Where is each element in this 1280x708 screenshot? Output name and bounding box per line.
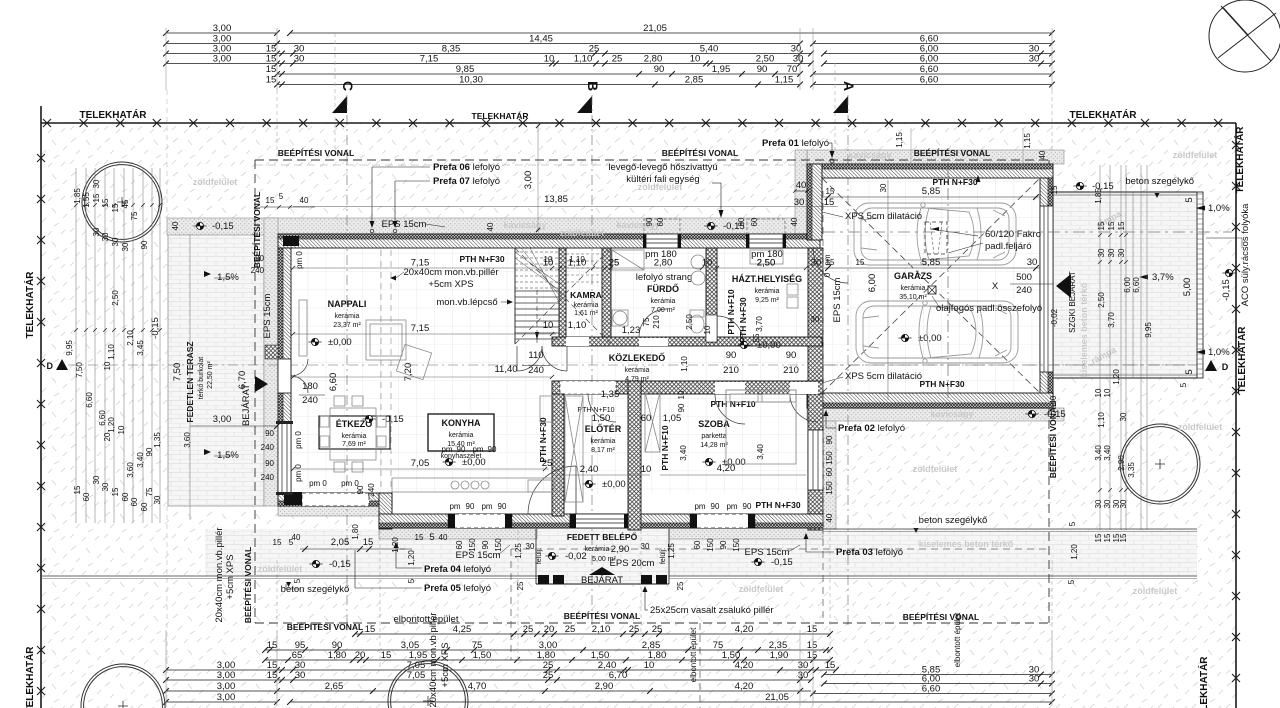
svg-text:30: 30	[798, 670, 809, 681]
svg-text:kavicságy: kavicságy	[848, 150, 891, 160]
svg-text:7,15: 7,15	[411, 323, 430, 334]
svg-text:14,28 m²: 14,28 m²	[700, 442, 728, 449]
svg-text:-0,15: -0,15	[212, 221, 234, 232]
svg-text:padl.feljáró: padl.feljáró	[985, 241, 1031, 252]
svg-text:-0,15: -0,15	[150, 317, 161, 339]
svg-text:BEÉPÍTÉSI VONAL: BEÉPÍTÉSI VONAL	[903, 612, 980, 622]
svg-text:35,10 m²: 35,10 m²	[899, 294, 927, 301]
svg-text:-0,02: -0,02	[565, 551, 587, 562]
svg-text:1,35: 1,35	[153, 432, 162, 448]
svg-text:40: 40	[825, 513, 834, 522]
svg-text:7,50: 7,50	[172, 363, 183, 382]
svg-text:15: 15	[824, 197, 835, 208]
svg-text:6,60: 6,60	[328, 373, 339, 392]
svg-text:1,0%: 1,0%	[1208, 347, 1230, 358]
svg-text:±0,00: ±0,00	[462, 457, 486, 468]
svg-text:7,15: 7,15	[411, 258, 430, 269]
svg-text:15: 15	[266, 53, 277, 64]
svg-text:60: 60	[82, 492, 91, 501]
svg-text:Prefa 04 lefolyó: Prefa 04 lefolyó	[424, 564, 491, 575]
svg-text:15: 15	[856, 258, 865, 267]
svg-text:ACO süly.rácsos folyóka: ACO süly.rácsos folyóka	[1240, 203, 1251, 306]
svg-text:1,0%: 1,0%	[1208, 203, 1230, 214]
svg-text:7,50: 7,50	[75, 362, 84, 378]
svg-text:25: 25	[516, 581, 525, 590]
svg-text:40: 40	[171, 221, 180, 230]
svg-text:5: 5	[279, 192, 284, 201]
svg-text:10: 10	[1094, 388, 1103, 397]
svg-text:1,10: 1,10	[574, 53, 593, 64]
svg-text:2,50: 2,50	[685, 314, 694, 330]
svg-text:B: B	[585, 81, 601, 91]
svg-text:3,00: 3,00	[217, 692, 236, 703]
svg-text:EPS 20cm: EPS 20cm	[610, 558, 655, 569]
svg-text:TELEKHATÁR: TELEKHATÁR	[79, 108, 147, 121]
svg-text:5: 5	[407, 578, 416, 583]
svg-text:240: 240	[261, 443, 275, 452]
svg-text:15: 15	[266, 64, 277, 75]
svg-text:FÜRDŐ: FÜRDŐ	[647, 283, 679, 294]
svg-text:5: 5	[1184, 369, 1195, 374]
svg-text:2,50: 2,50	[756, 53, 775, 64]
svg-text:30: 30	[1029, 53, 1040, 64]
svg-text:TELEKHATÁR: TELEKHATÁR	[23, 271, 36, 339]
svg-text:3,70: 3,70	[755, 316, 764, 332]
svg-text:40: 40	[790, 217, 799, 226]
svg-text:9,95: 9,95	[65, 340, 74, 356]
svg-text:pm 180: pm 180	[645, 249, 677, 260]
svg-text:2,10: 2,10	[592, 624, 611, 635]
svg-text:25: 25	[565, 624, 576, 635]
svg-text:30: 30	[1107, 248, 1116, 257]
svg-text:25: 25	[629, 624, 640, 635]
svg-text:-0,15: -0,15	[771, 557, 793, 568]
svg-text:3,7%: 3,7%	[1152, 272, 1174, 283]
svg-text:kerámia: kerámia	[591, 438, 616, 445]
svg-text:1,10: 1,10	[569, 255, 585, 264]
svg-text:15: 15	[1107, 221, 1116, 230]
svg-text:15: 15	[266, 74, 277, 85]
svg-text:5: 5	[293, 578, 302, 583]
svg-text:60: 60	[750, 217, 759, 226]
svg-text:-0,02: -0,02	[1050, 308, 1059, 327]
svg-text:XPS 5cm dilatáció: XPS 5cm dilatáció	[845, 211, 922, 222]
svg-text:30: 30	[92, 475, 101, 484]
svg-text:25: 25	[676, 581, 685, 590]
svg-text:PTH N+F10: PTH N+F10	[660, 425, 670, 470]
svg-text:90: 90	[466, 502, 475, 511]
svg-text:beton szegélykő: beton szegélykő	[919, 515, 988, 526]
svg-text:C: C	[340, 81, 356, 91]
svg-text:NAPPALI: NAPPALI	[328, 299, 367, 309]
svg-text:4,20: 4,20	[735, 624, 754, 635]
svg-text:1,23: 1,23	[622, 325, 641, 336]
svg-text:25: 25	[523, 624, 534, 635]
svg-text:parketta: parketta	[701, 433, 726, 440]
svg-text:90: 90	[654, 64, 665, 75]
svg-text:2,40: 2,40	[580, 464, 599, 475]
svg-text:2,80: 2,80	[644, 53, 663, 64]
svg-text:90: 90	[737, 217, 746, 226]
svg-text:30: 30	[879, 183, 888, 192]
svg-text:1,80: 1,80	[351, 524, 360, 540]
svg-text:90: 90	[265, 459, 274, 468]
svg-text:HÁZT.HELYISÉG: HÁZT.HELYISÉG	[732, 274, 802, 284]
svg-text:kültéri fali egység: kültéri fali egység	[626, 174, 699, 185]
svg-text:30: 30	[101, 232, 110, 241]
svg-text:40: 40	[796, 180, 807, 191]
svg-text:30: 30	[1117, 248, 1126, 257]
svg-text:kiselemes beton térkő: kiselemes beton térkő	[919, 539, 1014, 549]
svg-text:olajfogós padl.összefolyó: olajfogós padl.összefolyó	[936, 303, 1042, 314]
svg-text:1,50: 1,50	[473, 650, 492, 661]
svg-text:6,60: 6,60	[1132, 277, 1141, 293]
svg-text:75: 75	[145, 487, 154, 496]
svg-text:-0,15: -0,15	[1221, 279, 1232, 301]
svg-text:elbontott épület: elbontott épület	[689, 627, 698, 682]
svg-text:25x25cm vasalt zsalukó pillér: 25x25cm vasalt zsalukó pillér	[650, 605, 774, 616]
svg-text:1,10: 1,10	[680, 356, 689, 372]
svg-text:1,61 m²: 1,61 m²	[574, 310, 598, 317]
svg-text:5,00: 5,00	[1182, 278, 1193, 297]
svg-text:TELEKHATÁR: TELEKHATÁR	[1235, 326, 1248, 394]
svg-text:+5cm XPS: +5cm XPS	[225, 554, 236, 599]
svg-text:210: 210	[783, 365, 799, 376]
svg-text:15: 15	[92, 193, 101, 202]
svg-text:4,20: 4,20	[735, 660, 754, 671]
svg-text:30: 30	[294, 53, 305, 64]
svg-text:90: 90	[356, 485, 365, 494]
svg-text:70: 70	[787, 64, 798, 75]
svg-text:EPS 15cm: EPS 15cm	[832, 277, 843, 322]
svg-text:1,20: 1,20	[407, 550, 416, 566]
svg-text:levegő-levegő hőszivattyú: levegő-levegő hőszivattyú	[608, 162, 717, 173]
svg-text:D: D	[47, 361, 54, 371]
svg-text:40: 40	[292, 533, 301, 542]
svg-text:5,40: 5,40	[700, 43, 719, 54]
svg-text:240: 240	[367, 483, 376, 497]
svg-text:40: 40	[439, 533, 448, 542]
svg-text:20: 20	[544, 624, 555, 635]
svg-text:KÖZLEKEDŐ: KÖZLEKEDŐ	[609, 352, 666, 363]
svg-text:pm: pm	[449, 502, 460, 511]
svg-text:30: 30	[526, 542, 535, 551]
svg-text:60: 60	[130, 497, 139, 506]
svg-text:TELEKHATÁR: TELEKHATÁR	[1069, 108, 1137, 121]
svg-text:20x40cm mon.vb.pillér: 20x40cm mon.vb.pillér	[214, 527, 225, 622]
svg-text:zöldfelület: zöldfelület	[258, 564, 303, 574]
svg-text:10: 10	[103, 361, 112, 370]
svg-text:felülj.: felülj.	[660, 548, 667, 564]
svg-text:150: 150	[706, 538, 715, 552]
svg-text:30: 30	[1119, 412, 1128, 421]
svg-text:30: 30	[1027, 257, 1038, 268]
svg-text:15: 15	[1097, 221, 1106, 230]
svg-text:90: 90	[711, 502, 720, 511]
svg-text:SZGKI BEJÁRAT: SZGKI BEJÁRAT	[1068, 271, 1077, 333]
svg-text:240: 240	[1016, 285, 1032, 296]
svg-text:4,25: 4,25	[453, 624, 472, 635]
svg-text:Prefa 06 lefolyó: Prefa 06 lefolyó	[433, 162, 500, 173]
svg-text:+5cm XPS: +5cm XPS	[428, 279, 473, 290]
svg-text:elbontott épület: elbontott épület	[394, 614, 459, 625]
svg-text:90: 90	[140, 240, 149, 249]
svg-text:10,30: 10,30	[459, 74, 483, 85]
svg-text:55: 55	[752, 333, 761, 342]
svg-text:BEÉPÍTÉSI VONAL: BEÉPÍTÉSI VONAL	[243, 547, 253, 624]
svg-text:10: 10	[117, 425, 126, 434]
svg-text:10: 10	[644, 660, 655, 671]
svg-text:6,70: 6,70	[237, 371, 248, 390]
svg-text:2,85: 2,85	[685, 74, 704, 85]
svg-text:30: 30	[1119, 499, 1128, 508]
svg-text:2,65: 2,65	[325, 681, 344, 692]
svg-text:10: 10	[544, 53, 555, 64]
svg-text:TELEKHATÁR: TELEKHATÁR	[472, 111, 529, 121]
svg-text:7,15: 7,15	[420, 53, 439, 64]
svg-text:30: 30	[793, 53, 804, 64]
svg-text:4,20: 4,20	[735, 681, 754, 692]
svg-text:75: 75	[130, 211, 139, 220]
svg-text:lefolyó strang: lefolyó strang	[636, 272, 693, 283]
svg-text:7,05: 7,05	[407, 670, 426, 681]
svg-text:TELEKHATÁR: TELEKHATÁR	[1233, 126, 1246, 194]
svg-text:30: 30	[153, 495, 162, 504]
svg-text:500: 500	[1016, 272, 1032, 283]
svg-text:Prefa 07 lefolyó: Prefa 07 lefolyó	[433, 176, 500, 187]
svg-text:40: 40	[300, 196, 309, 205]
svg-text:5: 5	[1068, 521, 1077, 526]
svg-text:6,60: 6,60	[98, 410, 107, 426]
svg-text:3,00: 3,00	[217, 681, 236, 692]
svg-text:30: 30	[92, 179, 101, 188]
svg-text:15: 15	[73, 485, 82, 494]
svg-text:1,10: 1,10	[568, 320, 587, 331]
svg-text:PTH N+F10: PTH N+F10	[726, 289, 736, 334]
svg-text:1,35: 1,35	[601, 389, 620, 400]
svg-text:8,35: 8,35	[442, 43, 461, 54]
svg-text:60: 60	[656, 217, 665, 226]
svg-text:10: 10	[703, 325, 712, 334]
svg-text:1,95: 1,95	[712, 64, 731, 75]
svg-text:3,40: 3,40	[1103, 445, 1112, 461]
svg-text:25: 25	[609, 258, 620, 269]
svg-text:40: 40	[1049, 395, 1058, 404]
svg-text:1,15: 1,15	[1023, 133, 1032, 149]
svg-text:7,05: 7,05	[411, 458, 430, 469]
svg-text:TELEKHATÁR: TELEKHATÁR	[23, 646, 36, 708]
svg-text:BEÉPÍTÉSI VONAL: BEÉPÍTÉSI VONAL	[278, 148, 355, 158]
svg-text:25: 25	[652, 624, 663, 635]
svg-text:3,00: 3,00	[213, 53, 232, 64]
svg-text:4,70: 4,70	[468, 681, 487, 692]
svg-text:10: 10	[677, 390, 686, 399]
svg-text:1,10: 1,10	[1097, 412, 1106, 428]
svg-text:4,20: 4,20	[717, 463, 736, 474]
svg-text:15: 15	[807, 650, 818, 661]
svg-text:21,05: 21,05	[765, 692, 789, 703]
svg-text:6,60: 6,60	[920, 74, 939, 85]
svg-text:3,40: 3,40	[1094, 445, 1103, 461]
svg-text:15: 15	[1117, 221, 1126, 230]
svg-text:3,60: 3,60	[126, 462, 135, 478]
svg-text:beton szegélykő: beton szegélykő	[1125, 176, 1194, 187]
svg-text:30: 30	[794, 197, 805, 208]
svg-text:X: X	[992, 281, 999, 292]
svg-text:60: 60	[641, 413, 652, 424]
svg-text:90: 90	[757, 64, 768, 75]
svg-text:KAMRA: KAMRA	[570, 290, 602, 300]
svg-text:2,50: 2,50	[1097, 292, 1106, 308]
svg-text:1,20: 1,20	[1070, 544, 1079, 560]
svg-text:PTH N+F30: PTH N+F30	[932, 177, 977, 187]
svg-text:30: 30	[101, 482, 110, 491]
svg-text:kiselemes beton térkő: kiselemes beton térkő	[1079, 282, 1089, 377]
svg-text:10: 10	[1103, 388, 1112, 397]
svg-text:40: 40	[486, 222, 495, 231]
svg-text:15: 15	[266, 196, 275, 205]
svg-text:PTH N+F30: PTH N+F30	[919, 379, 964, 389]
svg-text:210: 210	[652, 315, 661, 329]
svg-text:kerámia: kerámia	[755, 288, 780, 295]
svg-text:pm: pm	[726, 502, 737, 511]
svg-text:10: 10	[690, 53, 701, 64]
svg-text:BEJÁRAT: BEJÁRAT	[581, 575, 623, 586]
svg-text:kerámia: kerámia	[335, 313, 360, 320]
svg-text:5: 5	[429, 532, 434, 543]
svg-text:30: 30	[811, 315, 820, 324]
svg-text:pm 0: pm 0	[294, 431, 303, 449]
svg-text:zöldfelület: zöldfelület	[193, 177, 238, 187]
svg-text:pm: pm	[823, 254, 832, 265]
svg-text:pm 0: pm 0	[309, 479, 327, 488]
svg-text:20x40cm mon.vb.pillér: 20x40cm mon.vb.pillér	[403, 267, 498, 278]
svg-text:6,00: 6,00	[1123, 277, 1132, 293]
svg-text:90: 90	[677, 403, 686, 412]
svg-text:150: 150	[468, 538, 477, 552]
svg-text:240: 240	[251, 266, 265, 275]
svg-text:2,90: 2,90	[611, 544, 630, 555]
svg-text:ELŐTÉR: ELŐTÉR	[585, 423, 622, 434]
svg-text:1,20: 1,20	[391, 537, 400, 553]
svg-text:150: 150	[732, 538, 741, 552]
svg-text:150: 150	[825, 481, 834, 495]
svg-text:30: 30	[92, 227, 101, 236]
svg-text:1,55: 1,55	[82, 192, 91, 208]
svg-text:15: 15	[1094, 533, 1103, 542]
svg-text:60: 60	[121, 492, 130, 501]
svg-text:zöldfelület: zöldfelület	[739, 584, 784, 594]
svg-text:1,85: 1,85	[73, 188, 82, 204]
svg-text:BEÉPÍTÉSI VONAL: BEÉPÍTÉSI VONAL	[662, 148, 739, 158]
svg-text:14,45: 14,45	[529, 33, 553, 44]
svg-text:3,60: 3,60	[183, 432, 192, 448]
svg-text:110: 110	[528, 350, 543, 361]
svg-text:90: 90	[498, 502, 507, 511]
svg-text:±0,00: ±0,00	[918, 333, 942, 344]
svg-text:90: 90	[488, 445, 497, 454]
svg-text:6,60: 6,60	[922, 683, 941, 694]
svg-text:7,00 m²: 7,00 m²	[651, 307, 675, 314]
svg-text:pm 0: pm 0	[294, 464, 303, 482]
svg-text:20: 20	[103, 432, 112, 441]
svg-text:90: 90	[265, 429, 274, 438]
svg-text:kerámia: kerámia	[901, 285, 926, 292]
svg-text:8,17 m²: 8,17 m²	[591, 447, 615, 454]
svg-text:75: 75	[642, 317, 651, 326]
svg-text:3,00: 3,00	[523, 171, 534, 190]
svg-text:30: 30	[1103, 499, 1112, 508]
svg-text:60: 60	[693, 540, 702, 549]
svg-text:1,15: 1,15	[895, 132, 904, 148]
svg-text:pm: pm	[441, 445, 452, 454]
svg-text:beton szegélykő: beton szegélykő	[281, 584, 350, 595]
svg-text:15: 15	[1103, 533, 1112, 542]
svg-text:2,50: 2,50	[757, 258, 776, 269]
svg-text:10: 10	[544, 255, 553, 264]
svg-text:20x40cm mon.vb.pillér: 20x40cm mon.vb.pillér	[428, 612, 439, 707]
svg-text:zöldfelület: zöldfelület	[560, 228, 605, 238]
svg-text:1,5%: 1,5%	[217, 450, 239, 461]
svg-text:PTH N+F30: PTH N+F30	[538, 417, 548, 462]
svg-text:30: 30	[811, 258, 822, 269]
svg-text:9,25 m²: 9,25 m²	[755, 297, 779, 304]
svg-text:210: 210	[723, 365, 739, 376]
svg-text:15: 15	[111, 487, 120, 496]
svg-text:±0,00: ±0,00	[328, 337, 352, 348]
svg-text:3,00: 3,00	[217, 670, 236, 681]
svg-text:15: 15	[101, 198, 110, 207]
svg-text:15: 15	[826, 187, 835, 196]
svg-text:3,00: 3,00	[213, 23, 232, 34]
svg-text:±0,00: ±0,00	[602, 479, 626, 490]
svg-text:1,20: 1,20	[1112, 369, 1121, 385]
svg-text:60: 60	[825, 467, 834, 476]
svg-text:0: 0	[823, 272, 832, 277]
svg-text:4,79 m²: 4,79 m²	[625, 376, 649, 383]
svg-text:9,95: 9,95	[1144, 322, 1153, 338]
svg-text:1,50: 1,50	[592, 413, 611, 424]
svg-text:KONYHA: KONYHA	[441, 418, 481, 428]
svg-text:PTH N+F30: PTH N+F30	[459, 254, 504, 264]
svg-text:kerámia: kerámia	[585, 546, 610, 553]
svg-text:Prefa 03 lefolyó: Prefa 03 lefolyó	[836, 547, 903, 558]
svg-text:90: 90	[825, 435, 834, 444]
svg-text:5: 5	[1184, 197, 1195, 202]
svg-text:10: 10	[641, 464, 652, 475]
svg-text:6,60: 6,60	[85, 392, 94, 408]
svg-text:FEDETT BELÉPŐ: FEDETT BELÉPŐ	[567, 531, 638, 542]
svg-text:3,35: 3,35	[1127, 462, 1136, 478]
svg-text:EPS 15cm: EPS 15cm	[262, 293, 273, 338]
svg-text:7,20: 7,20	[403, 363, 414, 382]
svg-text:TELEKHATÁR: TELEKHATÁR	[1197, 656, 1210, 708]
svg-text:90: 90	[457, 445, 466, 454]
svg-text:2,10: 2,10	[126, 330, 135, 346]
svg-text:10: 10	[543, 320, 554, 331]
svg-text:1,05: 1,05	[663, 413, 682, 424]
svg-text:13,85: 13,85	[544, 194, 568, 205]
svg-text:PTH N+F30: PTH N+F30	[755, 500, 800, 510]
svg-text:pm: pm	[694, 502, 705, 511]
svg-text:5: 5	[1067, 579, 1076, 584]
svg-text:felülj.: felülj.	[536, 548, 543, 564]
svg-text:240: 240	[261, 473, 275, 482]
svg-text:3,40: 3,40	[756, 444, 765, 460]
svg-text:25: 25	[543, 670, 554, 681]
svg-text:térkő burkolat: térkő burkolat	[198, 357, 205, 399]
svg-text:5,85: 5,85	[922, 257, 941, 268]
